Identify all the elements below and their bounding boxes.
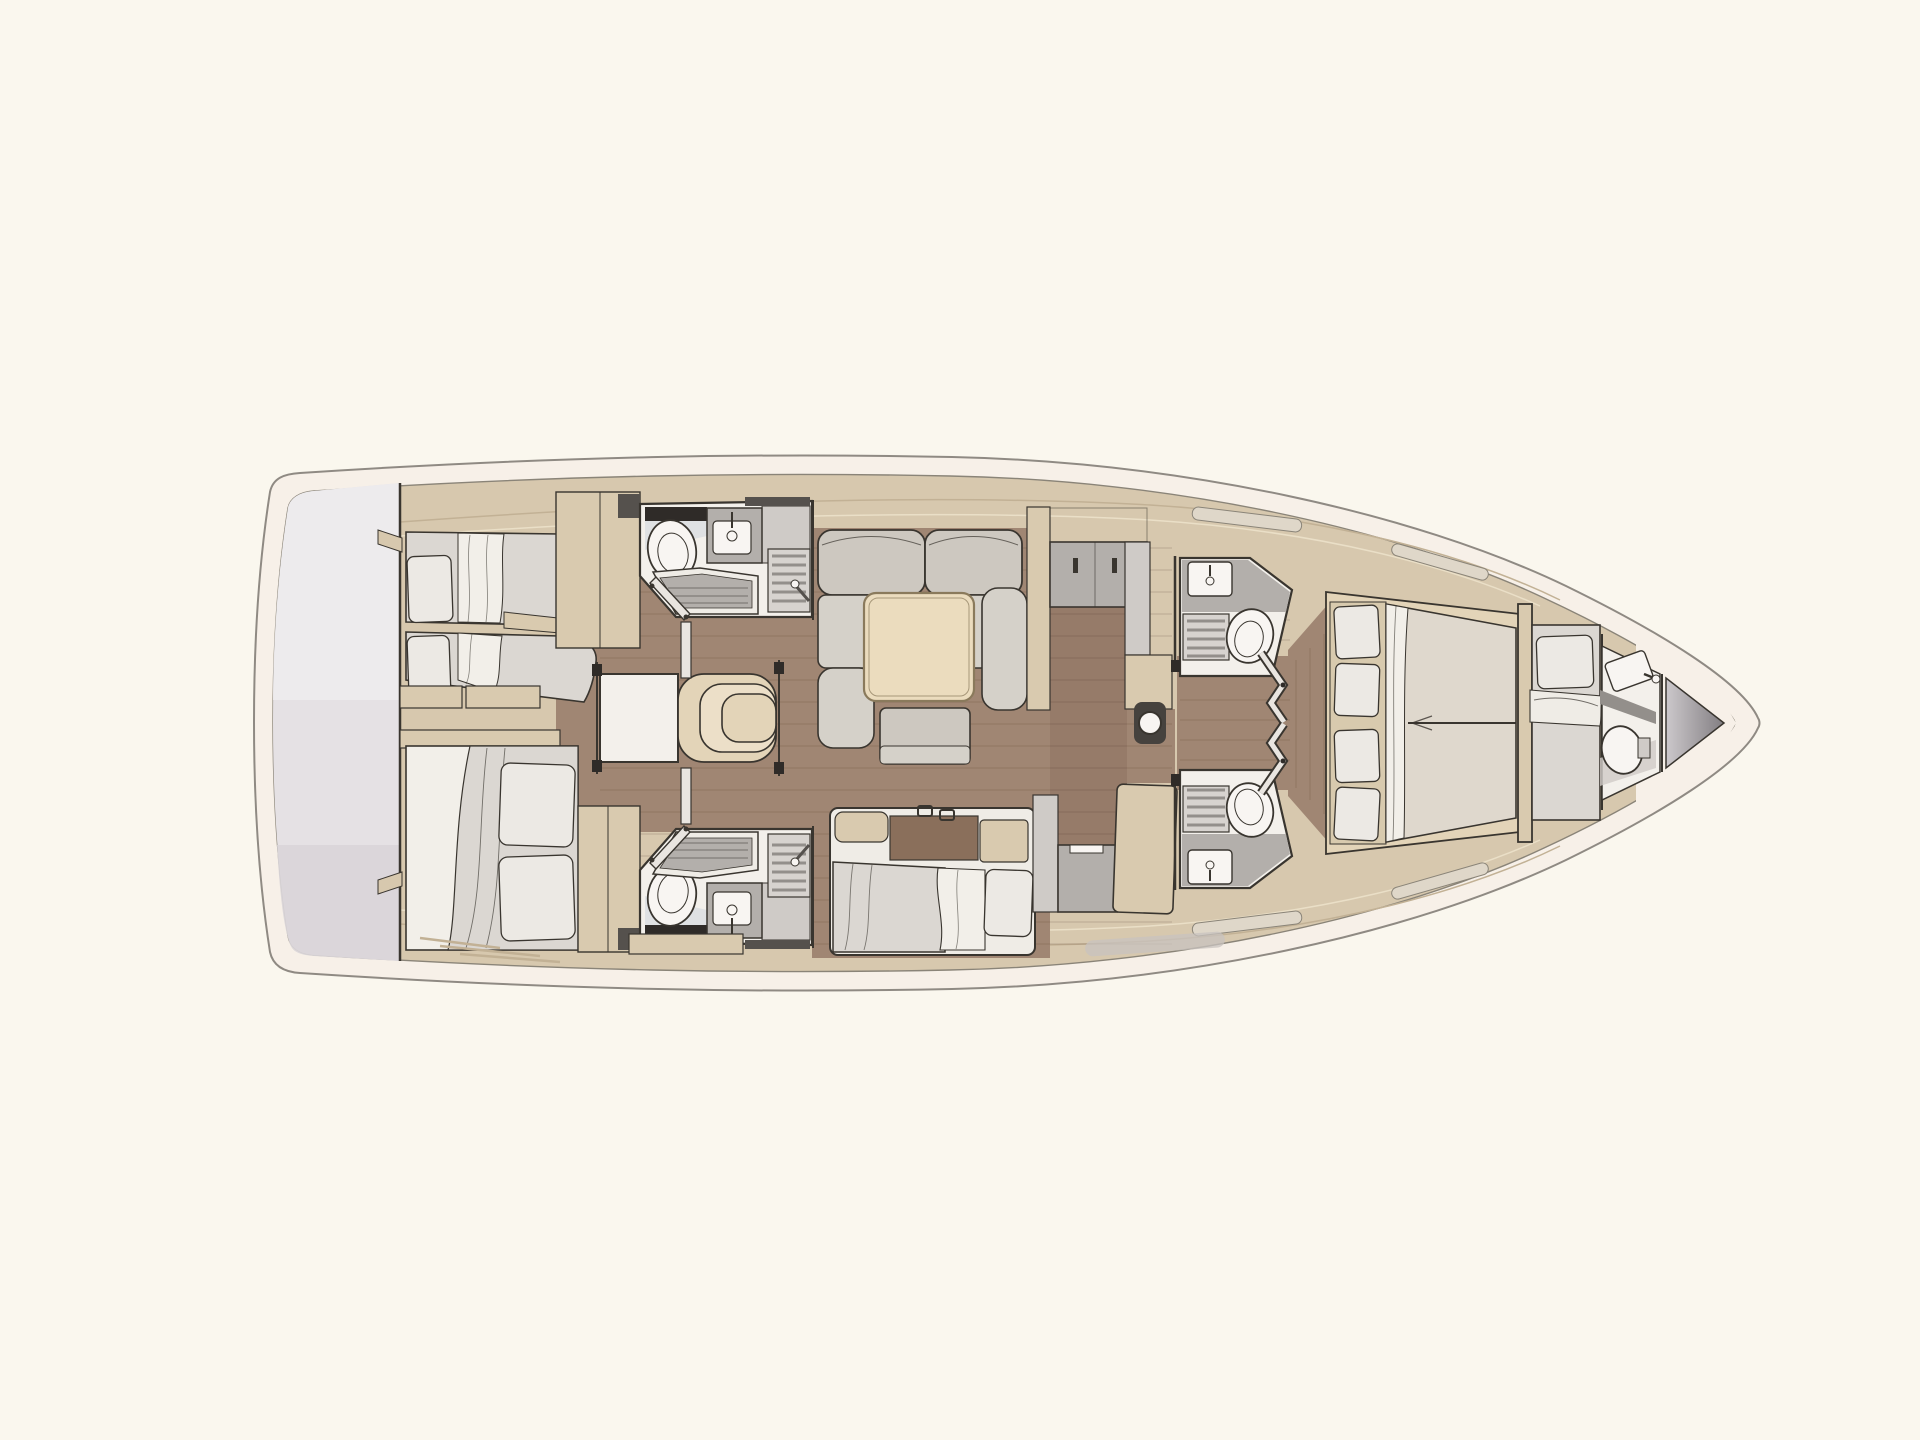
sofa-back-cushion [818, 530, 925, 595]
pillow [1334, 729, 1380, 783]
pillow [1536, 635, 1594, 689]
settee-headrest [835, 812, 888, 842]
pillow [499, 763, 576, 848]
chart-table [1113, 784, 1177, 914]
forward-bulkhead [1518, 604, 1532, 842]
galley-lower-panel [1033, 795, 1058, 912]
sofa-back-cushion [925, 530, 1022, 595]
galley-sink-counter [1058, 845, 1117, 912]
pillow [984, 869, 1033, 937]
sofa-right-return [982, 588, 1027, 710]
settee [830, 806, 1035, 955]
foot-shelf [466, 686, 540, 708]
galley-end-block [1125, 655, 1172, 709]
pillow [1334, 663, 1380, 717]
aft-cabin-starboard [400, 730, 578, 962]
galley-counter-leg [1125, 542, 1150, 655]
pillow [1334, 605, 1381, 659]
pillow [407, 555, 453, 622]
galley-end-column [1027, 507, 1050, 710]
berth-duvet [1386, 604, 1408, 842]
bed-1-duvet [458, 533, 504, 623]
aft-head-cabinet [629, 934, 743, 954]
yacht-floorplan [0, 0, 1920, 1440]
floorplan-page [0, 0, 1920, 1440]
settee-back-panel [890, 816, 978, 860]
forward-cabin [1326, 592, 1520, 854]
step-3 [722, 694, 776, 742]
pillow [499, 855, 576, 942]
berth-duvet [1530, 690, 1602, 726]
transom [273, 483, 402, 961]
companionway-landing [600, 674, 678, 762]
settee-duvet [937, 868, 985, 950]
mast-post [1134, 702, 1166, 744]
ottoman [880, 708, 970, 764]
settee-back-panel [980, 820, 1028, 862]
locker-dark [618, 494, 640, 518]
crew-cabin [1530, 625, 1602, 820]
pillow [1334, 787, 1381, 841]
saloon-table [864, 593, 974, 701]
foot-shelf [400, 686, 462, 708]
